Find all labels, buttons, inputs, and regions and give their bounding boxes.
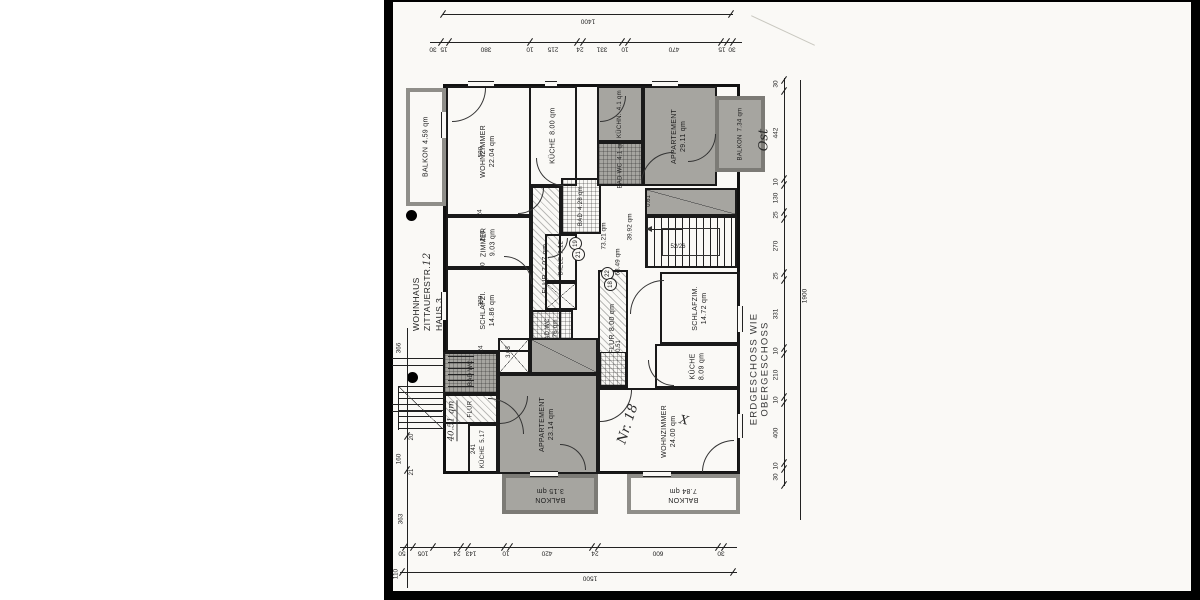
dim-int-380: 380 xyxy=(478,296,485,307)
dim-bottom-24b: 24 xyxy=(591,550,598,557)
dim-right-270: 270 xyxy=(773,241,780,252)
walk-line xyxy=(392,404,442,405)
room-label: APPARTEMENT23.14 qm xyxy=(539,396,558,451)
dim-right-400: 400 xyxy=(773,428,780,439)
dim-right-10b: 10 xyxy=(773,347,780,354)
dim-top-30r: 30 xyxy=(728,46,735,53)
stair-spec: 52/26 xyxy=(670,244,685,250)
entry-steps xyxy=(448,356,474,390)
dim-top-15l: 15 xyxy=(440,46,447,53)
dim-right-25a: 25 xyxy=(773,211,780,218)
annotation-061: 0.61 xyxy=(646,195,652,207)
room-label: BALKON 3.15 qm xyxy=(535,485,565,504)
dim-line-right-segments xyxy=(784,78,785,486)
dim-top-331: 331 xyxy=(597,46,608,53)
room-label: KÜCHE8.00 qm xyxy=(548,108,557,164)
window xyxy=(545,81,557,87)
dim-int-24a: 24 xyxy=(477,209,484,216)
window xyxy=(643,471,671,477)
room-label: SCHLAFZIM.14.72 qm xyxy=(691,286,710,331)
stair-runner xyxy=(662,228,720,256)
dim-top-10b: 10 xyxy=(621,46,628,53)
window xyxy=(652,81,678,87)
room-label: WOHNZIMMER24.00 qm xyxy=(660,405,679,458)
handwritten-house-number: 12 xyxy=(422,252,433,266)
dim-int-10: 10 xyxy=(480,262,487,269)
dim-right-10a: 10 xyxy=(773,178,780,185)
dim-top-10a: 10 xyxy=(526,46,533,53)
walk-line xyxy=(392,365,444,366)
dim-bottom-30: 30 xyxy=(717,550,724,557)
annotation-7321: 73.21 qm xyxy=(601,222,608,249)
dim-top-24: 24 xyxy=(576,46,583,53)
annotation-241: 241 xyxy=(471,444,477,454)
scan-edge-top xyxy=(392,0,1200,2)
scan-edge-left xyxy=(384,0,393,600)
window xyxy=(737,306,743,332)
window xyxy=(468,81,494,87)
room-bad: BAD4.28 qm xyxy=(561,178,601,234)
dim-bottom-50: 50 xyxy=(398,550,405,557)
dim-bottom-overall: 1500 xyxy=(583,575,597,582)
title-block: WOHNHAUS ZITTAUERSTR.12 HAUS 3 xyxy=(411,207,445,331)
room-label: BALKON 7.84 qm xyxy=(668,485,698,504)
dim-top-30l: 30 xyxy=(429,46,436,53)
dim-right-30b: 30 xyxy=(773,473,780,480)
room-label: BAD WC4.1 qm xyxy=(616,140,624,189)
exterior-stair-rail xyxy=(398,386,444,430)
room-label: APPARTEMENT29.11 qm xyxy=(671,108,690,163)
dim-int-580: 580 xyxy=(478,147,485,158)
dim-right-overall: 1900 xyxy=(802,289,809,303)
column-dot-2 xyxy=(407,372,418,383)
room-badwc-ne: BAD WC4.1 qm xyxy=(597,142,643,186)
wc-shaft-22 xyxy=(498,338,530,374)
dim-bottom-143: 143 xyxy=(466,550,477,557)
room-balkon-nw: BALKON4.59 qm xyxy=(406,88,446,206)
stair-arrow-line xyxy=(652,229,682,230)
shaft-22 xyxy=(530,338,598,374)
dim-bottom-24a: 24 xyxy=(453,550,460,557)
annotation-4051-hand: 40.51 qm xyxy=(447,401,458,442)
dim-right-10c: 10 xyxy=(773,396,780,403)
title-line-2: ZITTAUERSTR. xyxy=(422,266,432,331)
window xyxy=(530,471,558,477)
dim-left-366: 366 xyxy=(396,343,403,354)
annotation-3992: 39.92 qm xyxy=(627,213,634,240)
dim-top-15r: 15 xyxy=(718,46,725,53)
window xyxy=(441,112,447,138)
dim-top-380: 380 xyxy=(481,46,492,53)
dim-right-331: 331 xyxy=(773,309,780,320)
dim-line-top-segments xyxy=(430,42,742,43)
dim-top-470: 470 xyxy=(669,46,680,53)
scan-edge-bottom xyxy=(390,591,1200,600)
dim-top-overall: 1400 xyxy=(581,18,595,25)
room-label: BALKON4.59 qm xyxy=(421,117,430,178)
dim-right-210: 210 xyxy=(773,370,780,381)
dim-bottom-600: 600 xyxy=(653,550,664,557)
dim-left-363: 363 xyxy=(398,514,405,525)
title-line-3: HAUS 3 xyxy=(434,298,444,331)
dim-right-442: 442 xyxy=(773,128,780,139)
shaft-ne xyxy=(645,188,737,216)
dim-left-160: 160 xyxy=(396,454,403,465)
dim-line-bottom-segments xyxy=(400,547,737,548)
shaft-18 xyxy=(600,352,626,386)
dim-right-130: 130 xyxy=(773,193,780,204)
title-line-1: WOHNHAUS xyxy=(411,277,421,331)
unit-circle-18: 18 xyxy=(604,278,617,291)
room-label: FLUR xyxy=(466,401,474,418)
stair-arrow-head xyxy=(646,226,652,232)
room-balkon-18: BALKON 7.84 qm xyxy=(627,474,740,514)
dim-bottom-10: 10 xyxy=(502,550,509,557)
room-label: KÜCHE8.09 qm xyxy=(688,352,707,379)
room-label: KÜCHE5.17 xyxy=(479,430,487,468)
dim-right-30a: 30 xyxy=(773,80,780,87)
scan-edge-right xyxy=(1191,0,1200,600)
dim-line-bottom-overall xyxy=(400,572,737,573)
dim-bottom-105: 105 xyxy=(418,550,429,557)
unit-circle-21: 21 xyxy=(572,248,585,261)
room-label: BALKON7.34 qm xyxy=(736,108,744,161)
annotation-303: 3.03 xyxy=(506,346,512,358)
window xyxy=(737,414,743,438)
floor-note: ERDGESCHOSS WIE OBERGESCHOSS xyxy=(749,272,763,467)
dim-left-21: 21 xyxy=(409,469,415,476)
room-balkon-22: BALKON 3.15 qm xyxy=(502,474,598,514)
floor-plan-scan-page: 1400 30 15 380 10 215 24 331 10 470 15 3… xyxy=(0,0,1200,600)
walk-line xyxy=(392,358,444,359)
handwritten-ost: Ost xyxy=(757,129,772,152)
shaft-diele xyxy=(545,282,577,310)
dim-int-210: 210 xyxy=(480,231,487,242)
dim-left-20: 20 xyxy=(409,434,415,441)
dim-bottom-420: 420 xyxy=(542,550,553,557)
dim-line-top-overall xyxy=(443,14,733,15)
dim-right-10d: 10 xyxy=(773,462,780,469)
annotation-6349: 63.49 qm xyxy=(615,248,622,275)
dim-left-110: 110 xyxy=(393,569,400,579)
dim-top-215: 215 xyxy=(548,46,559,53)
dim-right-25b: 25 xyxy=(773,272,780,279)
dim-line-left xyxy=(407,328,408,588)
room-schlafzim-18: SCHLAFZIM.14.72 qm xyxy=(660,272,740,344)
annotation-051: 0.51 xyxy=(616,340,622,352)
walk-line xyxy=(392,411,442,412)
room-label: BAD4.28 qm xyxy=(577,186,585,226)
dim-int-24b: 24 xyxy=(478,345,485,352)
